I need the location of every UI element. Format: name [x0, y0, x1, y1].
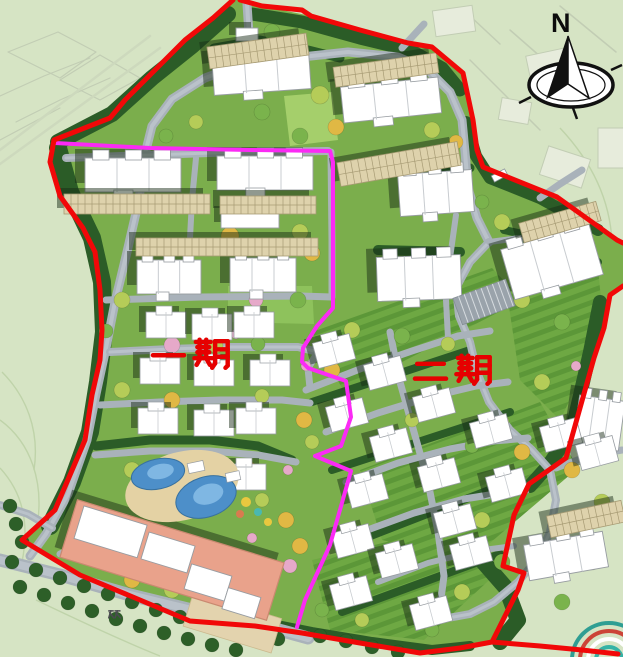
tree: [61, 596, 75, 610]
tree: [37, 588, 51, 602]
tree: [3, 499, 17, 513]
building-wing: [612, 392, 621, 403]
tree: [292, 128, 308, 144]
tree: [53, 571, 67, 585]
tree: [181, 632, 195, 646]
villa-building: [227, 306, 274, 338]
villa-building: [185, 308, 232, 340]
tree: [424, 122, 440, 138]
building-wing: [156, 306, 172, 315]
tree: [189, 115, 203, 129]
villa-building: [187, 404, 234, 436]
tree: [283, 465, 293, 475]
apartment-building: [207, 147, 313, 197]
playground-feature: [241, 497, 251, 507]
tree: [494, 214, 510, 230]
tree: [114, 382, 130, 398]
tree: [9, 517, 23, 531]
tree: [109, 612, 123, 626]
apartment-building: [220, 249, 296, 299]
site-plan-map: [0, 0, 623, 657]
tree: [296, 412, 312, 428]
tree: [290, 292, 306, 308]
tree: [283, 559, 297, 573]
tree: [205, 638, 219, 652]
building-wing: [204, 404, 220, 413]
building-wing: [528, 534, 543, 546]
tree: [251, 337, 265, 351]
tree: [209, 339, 223, 353]
playground-feature: [264, 518, 272, 526]
tree: [328, 119, 344, 135]
tree: [133, 619, 147, 633]
villa-building: [187, 354, 234, 386]
ghost-building: [432, 5, 475, 36]
building-wing: [383, 249, 398, 259]
building-footprint: [217, 156, 313, 190]
tree: [441, 337, 455, 351]
tree: [554, 314, 570, 330]
tree: [571, 361, 581, 371]
tree: [454, 584, 470, 600]
villa-building: [243, 354, 290, 386]
building-wing: [150, 352, 166, 361]
tree: [394, 328, 410, 344]
building-wing: [93, 150, 109, 160]
building-wing: [436, 247, 451, 257]
garage-row: [213, 190, 316, 214]
tree: [157, 626, 171, 640]
site-plan: N: [0, 0, 623, 657]
tree: [534, 374, 550, 390]
villa-building: [229, 402, 276, 434]
building-wing: [599, 390, 608, 401]
building-wing: [202, 308, 218, 317]
building-footprint: [376, 255, 461, 302]
tree: [247, 533, 257, 543]
playground-feature: [236, 510, 244, 518]
tree: [554, 594, 570, 610]
tree: [311, 86, 329, 104]
building-footprint: [137, 260, 201, 294]
building-wing: [204, 354, 220, 363]
tree: [5, 555, 19, 569]
apartment-building: [366, 246, 462, 309]
apartment-building: [127, 251, 201, 301]
building-wing: [125, 150, 141, 160]
tree: [29, 563, 43, 577]
tree: [278, 512, 294, 528]
building-wing: [244, 306, 260, 315]
tree: [355, 613, 369, 627]
garage-row: [129, 232, 318, 256]
building-wing: [411, 248, 426, 258]
villa-building: [139, 306, 186, 338]
building-footprint: [230, 258, 296, 292]
tree: [13, 580, 27, 594]
ghost-building: [498, 98, 531, 125]
ghost-building: [598, 128, 623, 168]
tree: [315, 603, 329, 617]
tree: [164, 337, 180, 353]
tree: [255, 493, 269, 507]
tree: [514, 444, 530, 460]
villa-building: [131, 402, 178, 434]
building-wing: [148, 402, 164, 411]
playground-feature: [254, 508, 262, 516]
tree: [292, 538, 308, 554]
villa-building: [133, 352, 180, 384]
tree: [474, 512, 490, 528]
tree: [114, 292, 130, 308]
tree: [159, 129, 173, 143]
tree: [255, 389, 269, 403]
building-wing: [154, 150, 170, 160]
building-wing: [246, 402, 262, 411]
tree: [305, 435, 319, 449]
garage-row: [57, 188, 210, 214]
tree: [229, 643, 243, 657]
tree: [254, 104, 270, 120]
building-footprint: [398, 169, 475, 216]
building-wing: [260, 354, 276, 363]
building-footprint: [85, 158, 181, 192]
building-wing: [236, 458, 252, 467]
tree: [475, 195, 489, 209]
tree: [85, 604, 99, 618]
